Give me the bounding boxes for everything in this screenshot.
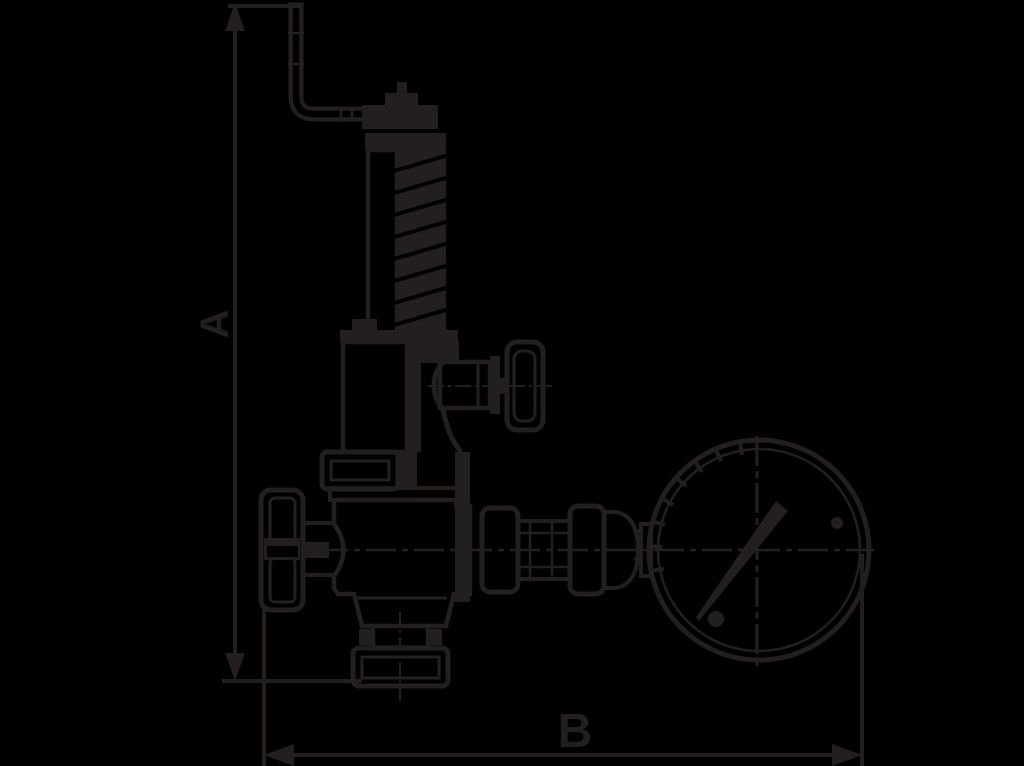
handwheel-spoke-top: [270, 498, 295, 543]
gauge-dial-ticks: [647, 440, 742, 571]
dimension-b-arrow-right-icon: [832, 744, 862, 766]
dimension-a: A: [193, 3, 362, 681]
spring-coils: [397, 150, 446, 333]
outlet-tab-right: [428, 629, 442, 645]
valve-technical-drawing: A B: [0, 0, 1024, 766]
bonnet-body: [343, 342, 407, 452]
cap-plate: [362, 105, 438, 129]
spring-assembly: [340, 133, 458, 342]
bonnet: [322, 329, 470, 602]
spring-top-plate: [365, 133, 446, 150]
bonnet-lower-stem: [399, 452, 417, 490]
gauge-screw-dot-right: [831, 517, 843, 529]
bonnet-flange: [322, 452, 398, 489]
handwheel-hub-slot: [267, 546, 298, 557]
yoke-rod: [368, 150, 397, 333]
dimension-a-label: A: [193, 310, 237, 339]
dimension-b-arrow-left-icon: [264, 744, 294, 766]
stem-cap: [362, 82, 438, 129]
gauge-needle: [696, 501, 788, 621]
stem-nipple: [385, 93, 418, 107]
lever-tube: [296, 5, 375, 114]
bonnet-stem-strip: [407, 342, 421, 452]
dimension-a-arrow-down-icon: [225, 653, 245, 681]
valve-body: [318, 488, 874, 626]
bonnet-bracket: [421, 329, 459, 363]
outlet-tab-left: [359, 629, 373, 645]
dimension-b-label: B: [558, 705, 593, 758]
drawing-canvas: A B: [0, 0, 1024, 766]
lift-lever: [288, 4, 375, 122]
body-outline: [334, 500, 470, 626]
bonnet-flange-inner: [331, 461, 389, 480]
gauge-screw-dot-left: [708, 611, 724, 627]
spring-seat-tab: [352, 319, 377, 330]
lever-tube-bore: [296, 8, 372, 114]
handwheel-spoke-bottom: [270, 558, 295, 602]
